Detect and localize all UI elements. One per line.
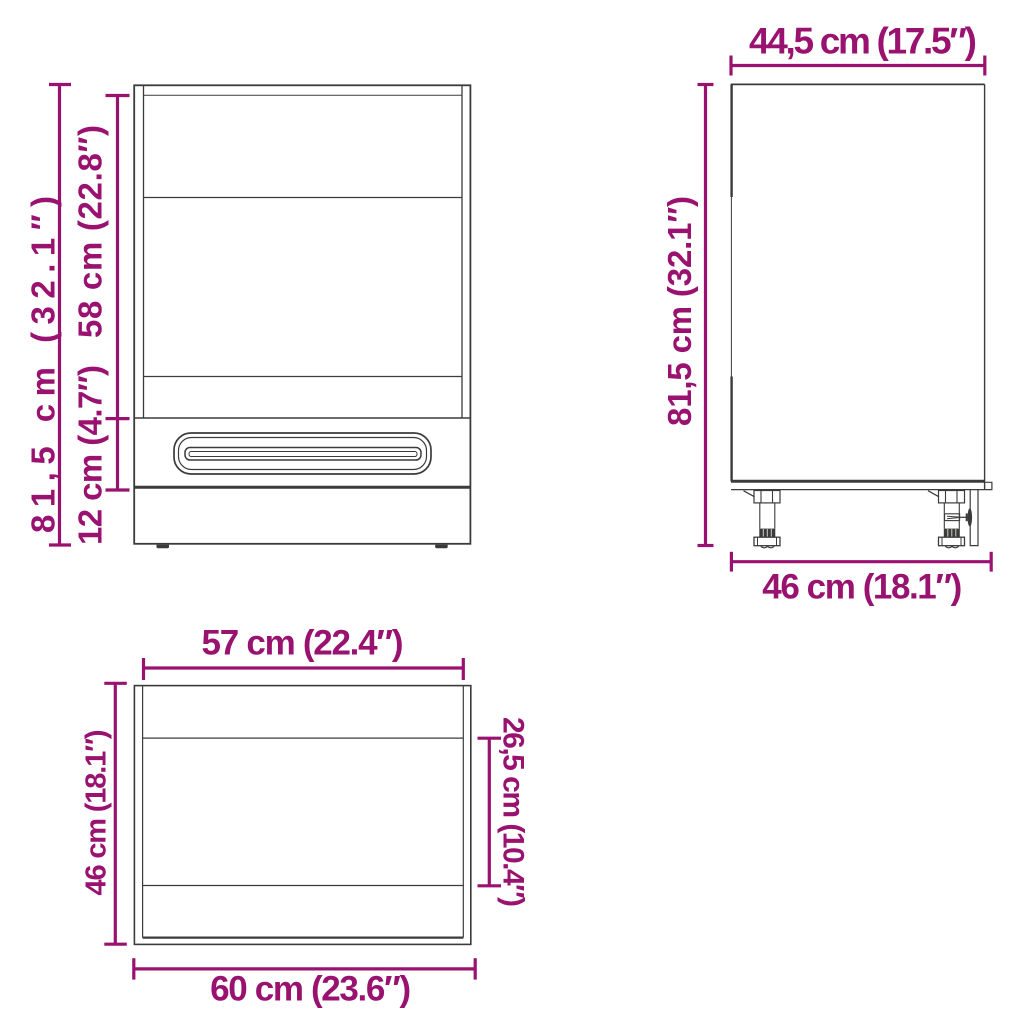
svg-text:46 cm (18.1″): 46 cm (18.1″)	[81, 730, 113, 896]
svg-text:58 cm (22.8″): 58 cm (22.8″)	[72, 125, 109, 338]
svg-text:60 cm (23.6″): 60 cm (23.6″)	[210, 970, 411, 1009]
svg-text:44,5 cm (17.5″): 44,5 cm (17.5″)	[749, 21, 977, 62]
svg-text:57 cm (22.4″): 57 cm (22.4″)	[202, 624, 404, 663]
svg-text:81,5 cm (32.1″): 81,5 cm (32.1″)	[661, 196, 698, 426]
svg-text:26,5 cm (10.4″): 26,5 cm (10.4″)	[497, 717, 530, 907]
svg-text:46 cm (18.1″): 46 cm (18.1″)	[762, 568, 962, 607]
svg-text:12 cm (4.7″): 12 cm (4.7″)	[72, 365, 109, 545]
